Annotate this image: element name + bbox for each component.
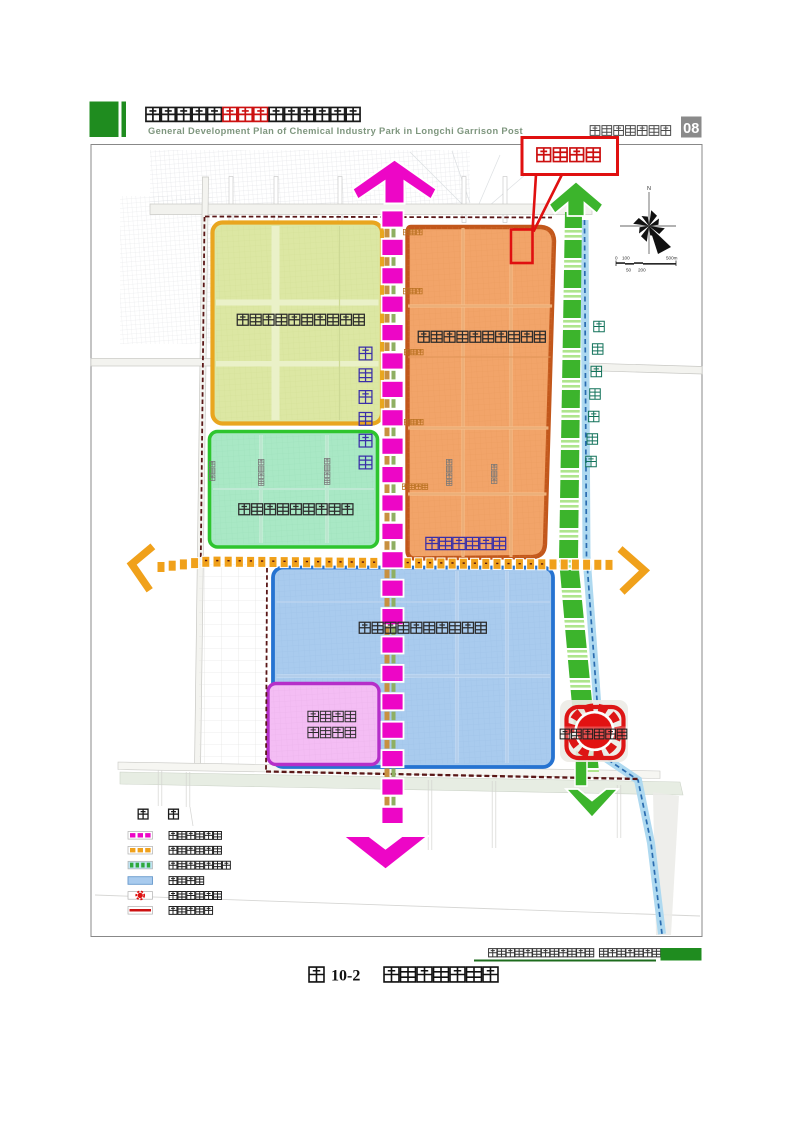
svg-text:100: 100: [622, 256, 630, 261]
svg-text:08: 08: [683, 121, 699, 137]
svg-text:500m: 500m: [666, 256, 678, 261]
svg-text:50: 50: [626, 268, 632, 273]
svg-text:200: 200: [638, 268, 646, 273]
svg-text:N: N: [647, 186, 651, 192]
svg-text:0: 0: [615, 256, 618, 261]
svg-text:10-2: 10-2: [331, 968, 360, 985]
svg-text:General Development Plan of Ch: General Development Plan of Chemical Ind…: [148, 126, 523, 136]
